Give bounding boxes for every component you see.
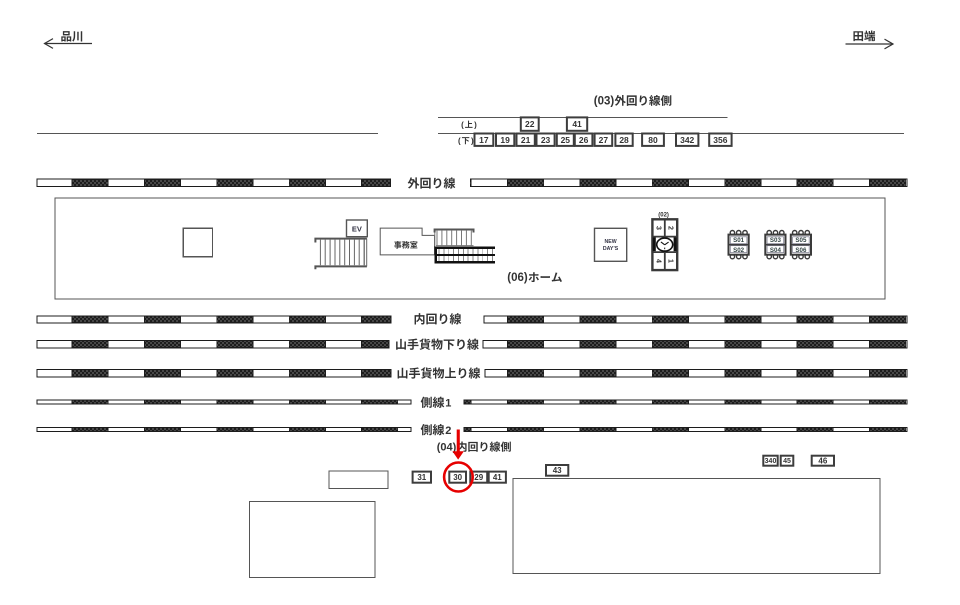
svg-text:26: 26	[579, 135, 589, 145]
svg-text:(06): (06)	[507, 272, 528, 284]
svg-text:S01: S01	[733, 237, 745, 244]
svg-text:1: 1	[445, 397, 451, 409]
svg-text:DAY’S: DAY’S	[603, 246, 619, 252]
svg-text:S02: S02	[733, 247, 745, 254]
svg-text:23: 23	[541, 135, 551, 145]
svg-text:80: 80	[648, 135, 658, 145]
svg-text:NEW: NEW	[605, 239, 617, 245]
svg-text:31: 31	[417, 473, 426, 482]
svg-text:S06: S06	[795, 247, 807, 254]
svg-text:19: 19	[500, 135, 510, 145]
svg-text:2: 2	[667, 226, 674, 230]
svg-text:(: (	[461, 120, 464, 129]
svg-text:21: 21	[521, 135, 531, 145]
svg-text:25: 25	[561, 135, 571, 145]
svg-text:29: 29	[474, 473, 483, 482]
svg-text:1: 1	[667, 259, 674, 263]
svg-text:S04: S04	[770, 247, 782, 254]
svg-text:17: 17	[479, 135, 489, 145]
svg-text:4: 4	[654, 259, 661, 263]
svg-text:45: 45	[783, 458, 791, 465]
svg-text:30: 30	[453, 473, 462, 482]
svg-text:356: 356	[713, 135, 727, 145]
svg-text:41: 41	[572, 119, 582, 129]
svg-text:(03): (03)	[594, 96, 615, 108]
svg-text:(: (	[458, 136, 461, 145]
svg-text:): )	[474, 120, 477, 129]
svg-text:43: 43	[553, 466, 562, 475]
svg-text:46: 46	[818, 457, 827, 466]
svg-text:3: 3	[654, 226, 661, 230]
svg-text:S03: S03	[770, 237, 782, 244]
svg-text:41: 41	[493, 473, 502, 482]
svg-text:EV: EV	[352, 224, 362, 233]
svg-text:S05: S05	[795, 237, 807, 244]
svg-text:27: 27	[599, 135, 609, 145]
svg-text:2: 2	[445, 425, 451, 437]
svg-text:342: 342	[680, 135, 694, 145]
svg-text:(02): (02)	[658, 213, 669, 219]
svg-text:22: 22	[525, 119, 535, 129]
svg-text:340: 340	[765, 458, 777, 465]
svg-text:28: 28	[619, 135, 629, 145]
